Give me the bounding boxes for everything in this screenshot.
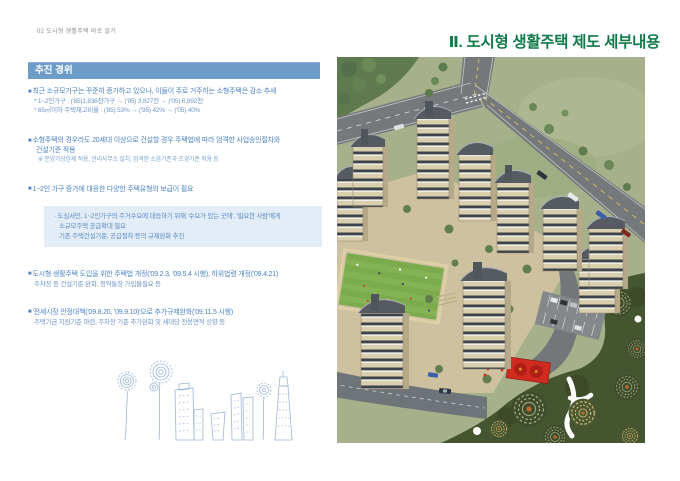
bullet-text: '전세시장 안정대책('09.8.20, '09.9.10)'으로 추가규제완화…: [32, 309, 233, 316]
page-header-label: 02 도시형 생활주택 바로 알기: [37, 26, 116, 35]
highlight-box-line: · 도심서민, 1~2인가구의 주거수요에 대응하기 위해 '수요가 있는 곳에…: [54, 212, 314, 222]
bullet-block-law-amendment: ■도시형 생활주택 도입을 위한 주택법 개정('09.2.3, '09.5.4…: [28, 270, 320, 289]
highlight-box-line: 소규모주택 공급확대 필요: [54, 222, 314, 232]
square-bullet-icon: ■: [28, 309, 31, 315]
highlight-box: · 도심서민, 1~2인가구의 주거수요에 대응하기 위해 '수요가 있는 곳에…: [44, 206, 322, 247]
sub-detail-line: 주차장 등 건설기준 완화, 청약통장 가입불필요 등: [28, 280, 320, 289]
bullet-line: ■도시형 생활주택 도입을 위한 주택법 개정('09.2.3, '09.5.4…: [28, 270, 320, 280]
brochure-page: 02 도시형 생활주택 바로 알기 Ⅱ. 도시형 생활주택 제도 세부내용 추진…: [0, 0, 680, 481]
sub-stat-line: * 1~2인가구 : ('85)1,836천가구 → ('95) 3,827천 …: [28, 97, 320, 106]
square-bullet-icon: ■: [28, 138, 31, 144]
bullet-text: 도시형 생활주택 도입을 위한 주택법 개정('09.2.3, '09.5.4 …: [32, 271, 278, 278]
city-flowers-sketch-icon: [103, 360, 303, 448]
highlight-box-line: 기존 주택건설기준, 공급절차 등의 규제완화 추진: [54, 232, 314, 242]
apartment-aerial-rendering-icon: [337, 57, 645, 443]
sub-detail-line: 주택기금 지원기준 마련, 주차장 기준 추가완화 및 세대당 전용면적 상향 …: [28, 318, 320, 327]
bullet-block-regulation: ■소형주택의 경우라도 20세대 이상으로 건설할 경우 주택법에 따라 엄격한…: [28, 136, 320, 165]
section-heading: 추진 경위: [35, 65, 73, 76]
square-bullet-icon: ■: [28, 271, 31, 277]
bullet-text: 최근 소규모가구는 꾸준히 증가하고 있으나, 이들이 주로 거주하는 소형주택…: [32, 88, 276, 95]
sub-stat-line: * 65㎡이하 주택재고비율 : ('85) 53% → ('95) 42% →…: [28, 106, 320, 115]
reference-note-line: ※ 분양가상한제 적용, 관리사무소 설치, 엄격한 소음기준과 조경기준 적용…: [28, 156, 320, 165]
bullet-block-jeonse-policy: ■'전세시장 안정대책('09.8.20, '09.9.10)'으로 추가규제완…: [28, 308, 320, 327]
bullet-block-supply-need: ■1~2인 가구 증가에 대응한 다양한 주택유형의 보급이 필요: [28, 185, 320, 195]
square-bullet-icon: ■: [28, 89, 31, 95]
section-heading-bar: 추진 경위: [28, 62, 320, 79]
bullet-text: 소형주택의 경우라도 20세대 이상으로 건설할 경우 주택법에 따라 엄격한 …: [32, 137, 280, 144]
bullet-line: ■'전세시장 안정대책('09.8.20, '09.9.10)'으로 추가규제완…: [28, 308, 320, 318]
bullet-line-continued: 건설기준 적용: [28, 146, 320, 156]
bullet-text: 1~2인 가구 증가에 대응한 다양한 주택유형의 보급이 필요: [32, 186, 193, 193]
content-column: 추진 경위 ■최근 소규모가구는 꾸준히 증가하고 있으나, 이들이 주로 거주…: [28, 62, 320, 327]
bullet-block-household-trend: ■최근 소규모가구는 꾸준히 증가하고 있으나, 이들이 주로 거주하는 소형주…: [28, 87, 320, 115]
page-title: Ⅱ. 도시형 생활주택 제도 세부내용: [449, 30, 660, 52]
bullet-line: ■최근 소규모가구는 꾸준히 증가하고 있으나, 이들이 주로 거주하는 소형주…: [28, 87, 320, 97]
square-bullet-icon: ■: [28, 186, 31, 192]
bullet-line: ■1~2인 가구 증가에 대응한 다양한 주택유형의 보급이 필요: [28, 185, 320, 195]
bullet-line: ■소형주택의 경우라도 20세대 이상으로 건설할 경우 주택법에 따라 엄격한…: [28, 136, 320, 146]
